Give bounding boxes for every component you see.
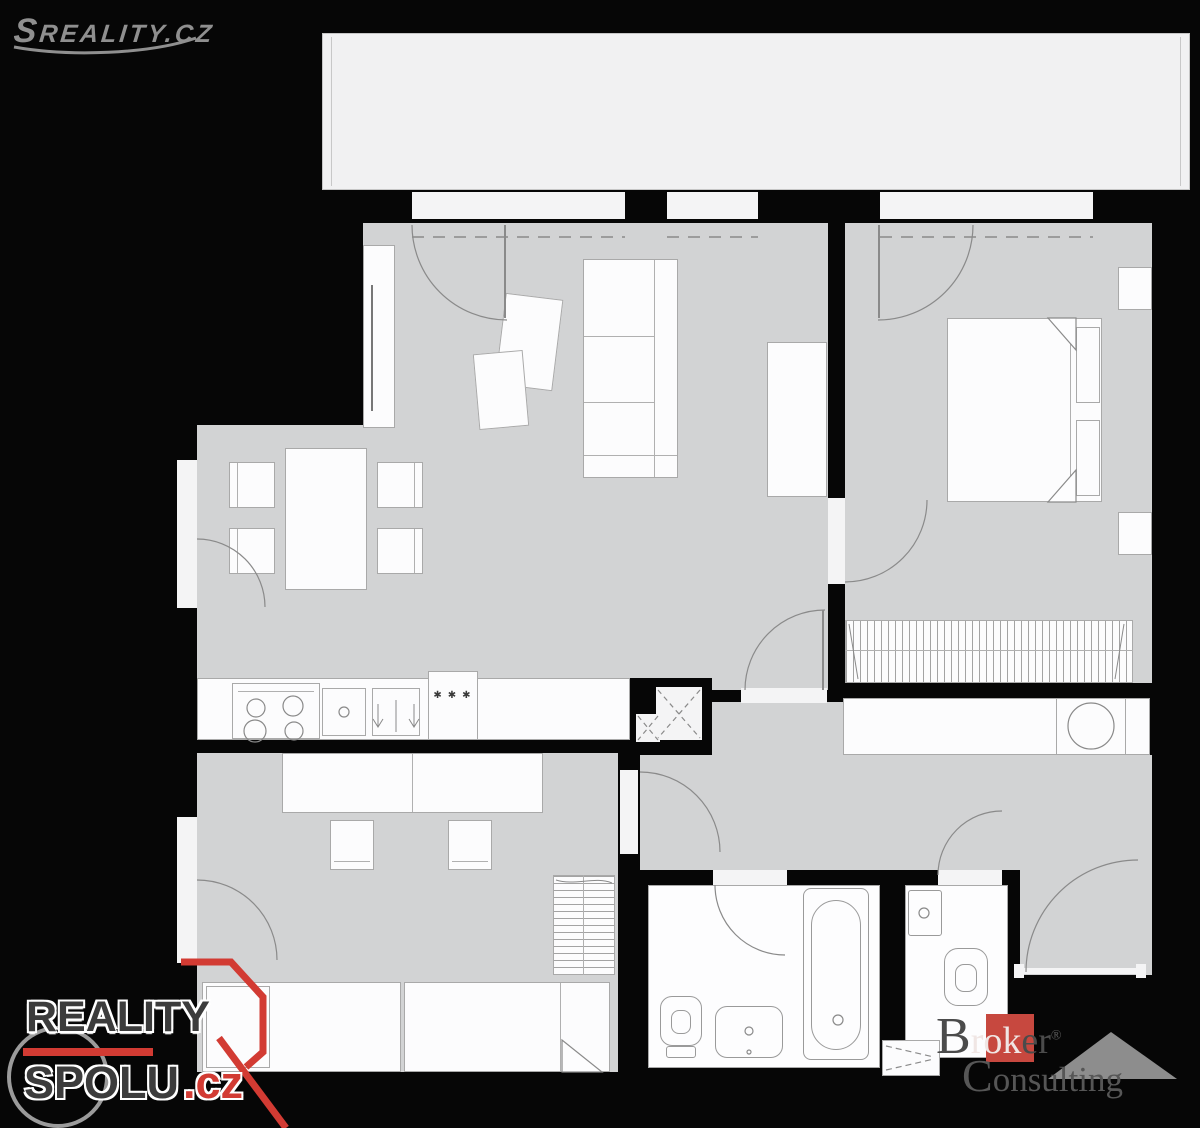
floor-hall	[640, 755, 1152, 870]
door-opening-kids-balcony	[177, 817, 197, 963]
broker-dark-letters: er	[1021, 1020, 1051, 1062]
shaft-inner-a	[656, 687, 702, 740]
armchair-2	[473, 350, 529, 430]
tv-screen	[371, 285, 373, 411]
wall-kitchen-kids	[175, 740, 632, 753]
realityspolu-spolu-row: SPOLU.cz	[24, 1057, 243, 1109]
sofa-cushion-line-2	[584, 402, 654, 403]
chair-line-2	[237, 529, 238, 573]
dining-chair-4	[377, 528, 423, 574]
door-opening-living-hall	[741, 688, 827, 703]
desk-chair-2-line	[452, 861, 488, 862]
consulting-word: Consulting	[962, 1058, 1123, 1100]
consulting-rest: onsulting	[993, 1060, 1123, 1099]
terrace-edge-left	[331, 37, 332, 186]
broker-word: Broker®	[936, 1018, 1062, 1063]
broker-consulting-logo: Broker® Consulting	[920, 1000, 1200, 1128]
sideboard-living	[767, 342, 827, 497]
window-bedroom	[880, 192, 1093, 219]
dining-chair-2	[229, 528, 275, 574]
wardrobe-bedroom-rail	[845, 650, 1133, 651]
door-opening-dining	[177, 460, 197, 608]
nightstand-1	[1118, 267, 1152, 310]
door-opening-bath	[713, 870, 787, 885]
realityspolu-logo: REALITY SPOLU.cz	[0, 955, 280, 1128]
window-living-1	[412, 192, 625, 219]
chair-line-3	[414, 463, 415, 507]
realityspolu-cz-text: .cz	[183, 1057, 243, 1108]
floorplan-canvas: ✱ ✱ ✱ SREALITY.CZ REALITY SPOLU.cz Broke…	[0, 0, 1200, 1128]
wardrobe-bedroom	[845, 620, 1133, 683]
sreality-watermark: SREALITY.CZ	[12, 12, 217, 51]
floor-vestibule	[1020, 870, 1152, 975]
stove-panel-line	[238, 691, 314, 692]
dining-chair-1	[229, 462, 275, 508]
wc-toilet-inner	[955, 964, 977, 992]
shaft-inner-b	[636, 714, 660, 742]
toilet-bath-base	[666, 1046, 696, 1058]
terrace-edge-right	[1180, 37, 1181, 186]
fridge-module	[428, 671, 478, 740]
freezer-symbol: ✱ ✱ ✱	[428, 690, 478, 701]
door-opening-kids	[620, 770, 638, 854]
dishwasher-module	[372, 688, 420, 736]
wall-left-top	[337, 223, 363, 425]
registered-icon: ®	[1051, 1028, 1062, 1043]
wardrobe-kids	[553, 875, 615, 975]
dining-table	[285, 448, 367, 590]
sofa-cushion-line-1	[584, 336, 654, 337]
bed-kids-2-line	[560, 983, 561, 1071]
washing-machine	[1056, 698, 1126, 755]
realityspolu-reality-text: REALITY	[26, 993, 210, 1042]
floor-hall-arm	[712, 702, 843, 755]
realityspolu-spolu-text: SPOLU	[24, 1057, 179, 1108]
wall-living-bedroom-a	[828, 223, 845, 500]
sofa-armrest-line	[584, 455, 677, 456]
entry-door-jamb-right	[1136, 964, 1146, 978]
chair-line-1	[237, 463, 238, 507]
sofa	[583, 259, 678, 478]
chair-line-4	[414, 529, 415, 573]
consulting-cap-c: C	[962, 1050, 993, 1101]
kitchen-sink-module	[322, 688, 366, 736]
wardrobe-kids-rail	[583, 875, 584, 975]
sofa-back-line	[654, 260, 655, 477]
desk-divider	[412, 754, 413, 812]
dining-chair-3	[377, 462, 423, 508]
bed-kids-2	[404, 982, 610, 1072]
pillow-2	[1076, 420, 1100, 496]
entry-door-leaf	[1024, 968, 1136, 974]
desk-chair-1	[330, 820, 374, 870]
tv-sideboard	[363, 245, 395, 428]
toilet-bath-inner	[671, 1010, 691, 1034]
washbasin	[715, 1006, 783, 1058]
bed-blanket-line	[1070, 319, 1071, 501]
realityspolu-underline	[23, 1048, 153, 1056]
bathtub-inner	[811, 900, 861, 1050]
nightstand-2	[1118, 512, 1152, 555]
door-opening-bedroom	[828, 498, 845, 584]
wc-corner-sink	[908, 890, 942, 936]
terrace	[322, 33, 1190, 190]
wall-living-bedroom-b	[828, 584, 845, 700]
pillow-1	[1076, 327, 1100, 403]
desk-chair-2	[448, 820, 492, 870]
entry-door-jamb-left	[1014, 964, 1024, 978]
window-living-2	[667, 192, 758, 219]
desk-chair-1-line	[334, 861, 370, 862]
door-opening-wc	[938, 870, 1002, 885]
